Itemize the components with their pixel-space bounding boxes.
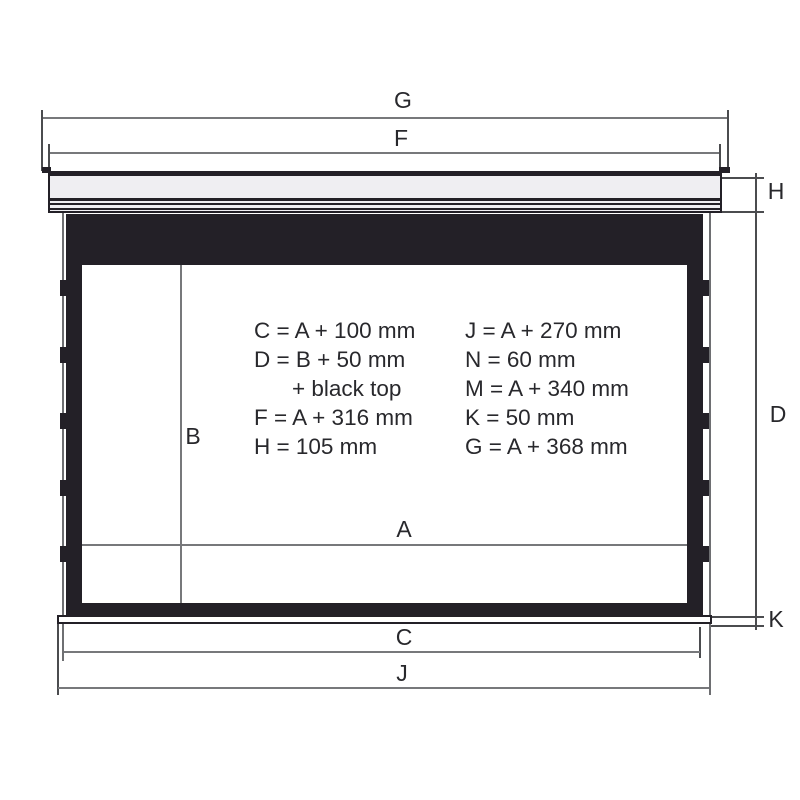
dim-g-tick-left [41,110,43,171]
tension-tab [702,546,709,562]
dim-j-ext-left [57,620,59,695]
dim-k-ext-bottom [711,625,764,627]
formula-line: F = A + 316 mm [254,403,415,432]
dim-c-ext-right [699,627,701,658]
dim-g-tick-right [727,110,729,172]
casing-groove-bottom [50,208,720,210]
formula-line: C = A + 100 mm [254,316,415,345]
dim-d-label: D [765,402,791,426]
mounting-bracket-right [719,167,730,173]
tension-tab [60,280,67,296]
tension-tab [60,347,67,363]
formula-column-left: C = A + 100 mm D = B + 50 mm + black top… [254,316,415,461]
screen-dimension-diagram: G F A B H D K C J [0,0,800,800]
mounting-bracket-left [42,167,51,173]
tension-tab [60,480,67,496]
casing-groove-upper [50,198,720,201]
formula-column-right: J = A + 270 mm N = 60 mm M = A + 340 mm … [465,316,629,461]
tension-tab [60,546,67,562]
casing-groove-lower [50,203,720,205]
dim-c-label: C [391,625,417,649]
dim-a-label: A [391,517,417,541]
formula-line: D = B + 50 mm [254,345,415,374]
dim-f-label: F [388,126,414,150]
dim-h-ext-top [722,177,764,179]
tension-tab [702,480,709,496]
dim-g-line [41,117,728,119]
screen-casing [48,171,722,213]
formula-line: K = 50 mm [465,403,629,432]
tension-tab [60,413,67,429]
dim-j-label: J [389,661,415,685]
dim-f-line [48,152,720,154]
dim-h-ext-bottom [722,211,764,213]
dim-h-label: H [763,179,789,203]
tension-tab [702,347,709,363]
tension-tab [702,280,709,296]
formula-line: N = 60 mm [465,345,629,374]
dim-b-label: B [180,424,206,448]
formula-line: G = A + 368 mm [465,432,629,461]
dim-right-vline [755,173,757,630]
formula-line: + black top [254,374,415,403]
dim-k-label: K [763,607,789,631]
bottom-weight-bar [57,615,712,624]
dim-c-line [63,651,700,653]
formula-line: H = 105 mm [254,432,415,461]
formula-line: J = A + 270 mm [465,316,629,345]
formula-line: M = A + 340 mm [465,374,629,403]
dim-g-label: G [390,88,416,112]
dim-j-line [58,687,710,689]
tension-tab [702,413,709,429]
dim-a-line [82,544,687,546]
dim-k-ext-top [711,616,764,618]
